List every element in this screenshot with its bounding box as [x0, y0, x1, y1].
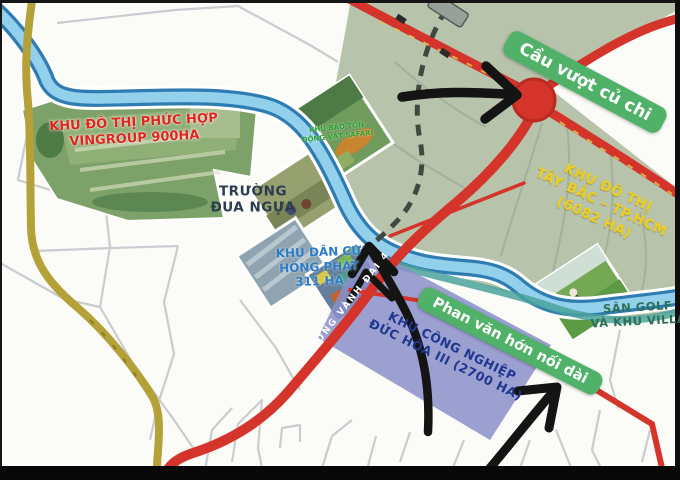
label-line: ĐUA NGỰA: [210, 200, 295, 216]
map-screenshot: KHU ĐÔ THỊ PHỨC HỢP VINGROUP 900HA TRƯỜN…: [0, 0, 680, 480]
roundabout: [513, 79, 555, 121]
label-hong-phat-residential: KHU DÂN CƯ HỒNG PHÁT 311 HA: [275, 244, 362, 291]
label-golf-villa: SÂN GOLF VÀ KHU VILLA: [590, 298, 680, 331]
label-line: TRƯỜNG: [210, 184, 295, 200]
label-line: 311 HA: [276, 273, 362, 291]
arrow-to-roundabout-shaft: [402, 92, 505, 97]
label-horse-racecourse: TRƯỜNG ĐUA NGỰA: [210, 184, 295, 217]
